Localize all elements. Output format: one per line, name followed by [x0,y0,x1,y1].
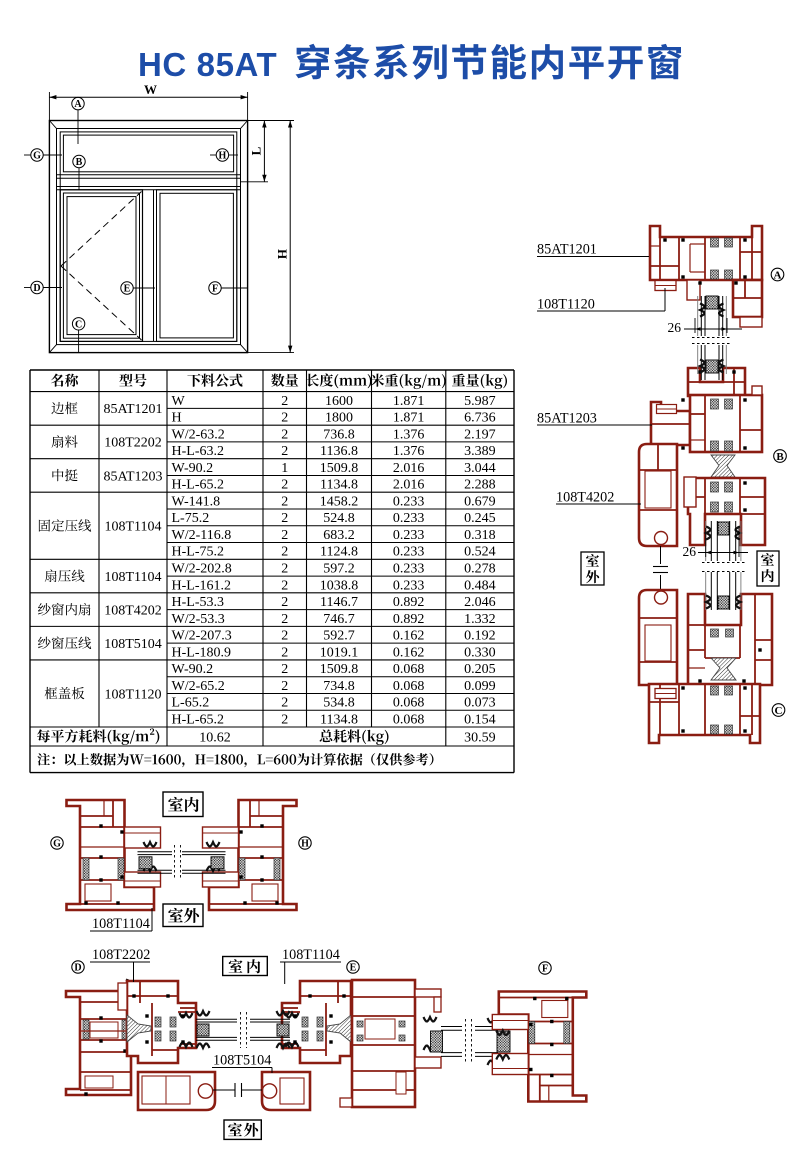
svg-text:85AT1203: 85AT1203 [537,411,597,427]
svg-text:H-L-75.2: H-L-75.2 [172,545,225,560]
svg-text:26: 26 [683,544,697,559]
svg-text:1134.8: 1134.8 [320,478,358,493]
svg-text:1.871: 1.871 [393,394,425,409]
svg-text:2: 2 [281,528,288,543]
svg-text:0.233: 0.233 [393,578,425,593]
svg-text:746.7: 746.7 [323,612,355,627]
svg-text:2: 2 [281,427,288,442]
svg-text:C: C [775,705,783,717]
svg-text:85AT1203: 85AT1203 [103,469,162,484]
svg-text:0.245: 0.245 [464,511,496,526]
svg-text:2: 2 [281,511,288,526]
svg-text:2: 2 [281,645,288,660]
svg-text:L: L [249,146,264,155]
svg-text:85AT1201: 85AT1201 [537,242,597,258]
svg-text:734.8: 734.8 [323,679,355,694]
svg-text:0.892: 0.892 [393,595,425,610]
svg-text:2.288: 2.288 [464,478,496,493]
svg-text:2.016: 2.016 [393,461,425,476]
svg-text:0.892: 0.892 [393,612,425,627]
svg-text:108T1104: 108T1104 [92,916,150,932]
svg-text:2: 2 [281,612,288,627]
svg-text:1509.8: 1509.8 [320,662,359,677]
svg-text:2: 2 [281,712,288,727]
svg-text:G: G [33,151,41,162]
svg-text:F: F [542,964,548,975]
svg-text:0.205: 0.205 [464,662,496,677]
svg-text:524.8: 524.8 [323,511,355,526]
svg-text:W/2-65.2: W/2-65.2 [172,679,225,694]
svg-text:0.154: 0.154 [464,712,496,727]
svg-text:0.318: 0.318 [464,528,496,543]
svg-text:B: B [76,157,83,168]
svg-text:H: H [219,151,227,162]
svg-text:2: 2 [281,696,288,711]
svg-text:W-141.8: W-141.8 [172,494,221,509]
svg-text:1019.1: 1019.1 [320,645,359,660]
svg-text:592.7: 592.7 [323,629,355,644]
svg-text:108T4202: 108T4202 [556,490,614,506]
svg-text:108T4202: 108T4202 [104,603,162,618]
svg-text:0.330: 0.330 [464,645,496,660]
svg-text:2: 2 [281,478,288,493]
svg-text:0.162: 0.162 [393,629,425,644]
svg-text:0.068: 0.068 [393,696,425,711]
svg-text:534.8: 534.8 [323,696,355,711]
svg-text:W/2-207.3: W/2-207.3 [172,629,232,644]
svg-text:W/2-202.8: W/2-202.8 [172,561,232,576]
svg-text:108T1104: 108T1104 [104,570,161,585]
svg-text:108T2202: 108T2202 [104,436,162,451]
svg-text:H: H [301,839,309,850]
svg-text:1038.8: 1038.8 [320,578,359,593]
svg-text:E: E [124,284,131,295]
svg-text:0.679: 0.679 [464,494,496,509]
svg-text:H: H [172,411,182,426]
svg-text:W: W [172,394,186,409]
svg-text:0.233: 0.233 [393,561,425,576]
svg-text:W: W [144,82,157,97]
svg-text:1146.7: 1146.7 [320,595,358,610]
svg-text:0.484: 0.484 [464,578,496,593]
svg-text:L-75.2: L-75.2 [172,511,210,526]
svg-text:0.068: 0.068 [393,662,425,677]
svg-text:0.073: 0.073 [464,696,496,711]
svg-text:0.162: 0.162 [393,645,425,660]
svg-text:0.233: 0.233 [393,511,425,526]
svg-text:1.871: 1.871 [393,411,425,426]
svg-text:B: B [776,451,784,463]
svg-text:1.376: 1.376 [393,444,425,459]
svg-text:108T5104: 108T5104 [104,637,162,652]
svg-text:5.987: 5.987 [464,394,496,409]
svg-text:683.2: 683.2 [323,528,355,543]
svg-text:W/2-63.2: W/2-63.2 [172,427,225,442]
svg-text:2.197: 2.197 [464,427,496,442]
svg-text:1458.2: 1458.2 [320,494,359,509]
svg-text:L-65.2: L-65.2 [172,696,210,711]
svg-text:2: 2 [281,494,288,509]
svg-text:0.068: 0.068 [393,679,425,694]
svg-text:85AT1201: 85AT1201 [103,402,162,417]
svg-text:1600: 1600 [325,394,353,409]
svg-text:736.8: 736.8 [323,427,355,442]
svg-text:0.524: 0.524 [464,545,496,560]
svg-text:2: 2 [281,545,288,560]
svg-text:E: E [350,963,357,974]
svg-text:2: 2 [281,679,288,694]
svg-text:108T1104: 108T1104 [282,947,340,963]
svg-text:0.192: 0.192 [464,629,496,644]
svg-text:1136.8: 1136.8 [320,444,358,459]
svg-text:W-90.2: W-90.2 [172,461,214,476]
svg-text:2: 2 [281,578,288,593]
svg-text:0.099: 0.099 [464,679,496,694]
svg-text:H-L-63.2: H-L-63.2 [172,444,225,459]
svg-text:1134.8: 1134.8 [320,712,358,727]
svg-text:2: 2 [281,444,288,459]
svg-text:1: 1 [281,461,288,476]
svg-text:D: D [74,963,81,974]
svg-text:H-L-161.2: H-L-161.2 [172,578,232,593]
svg-text:1800: 1800 [325,411,353,426]
svg-text:A: A [74,99,82,110]
svg-text:108T5104: 108T5104 [213,1053,271,1069]
svg-text:1509.8: 1509.8 [320,461,359,476]
svg-text:26: 26 [668,320,682,335]
svg-text:0.278: 0.278 [464,561,496,576]
svg-text:30.59: 30.59 [464,730,496,745]
svg-text:6.736: 6.736 [464,411,496,426]
svg-text:W-90.2: W-90.2 [172,662,214,677]
svg-text:0.233: 0.233 [393,494,425,509]
svg-text:2: 2 [281,411,288,426]
svg-text:10.62: 10.62 [199,730,231,745]
svg-text:0.233: 0.233 [393,545,425,560]
svg-text:0.233: 0.233 [393,528,425,543]
svg-text:H-L-65.2: H-L-65.2 [172,712,225,727]
svg-text:HC 85AT: HC 85AT [138,46,277,83]
svg-text:F: F [212,284,218,295]
svg-text:1124.8: 1124.8 [320,545,358,560]
svg-text:108T1120: 108T1120 [104,687,161,702]
svg-text:G: G [53,839,61,850]
svg-text:1.376: 1.376 [393,427,425,442]
svg-text:2: 2 [281,629,288,644]
svg-text:3.389: 3.389 [464,444,496,459]
svg-text:1.332: 1.332 [464,612,496,627]
svg-text:108T2202: 108T2202 [92,947,150,963]
svg-text:2.016: 2.016 [393,478,425,493]
svg-text:H-L-65.2: H-L-65.2 [172,478,225,493]
svg-text:H: H [275,249,290,259]
svg-text:2: 2 [281,394,288,409]
svg-text:2: 2 [281,662,288,677]
svg-text:W/2-53.3: W/2-53.3 [172,612,225,627]
svg-text:2: 2 [281,561,288,576]
svg-text:C: C [75,319,82,330]
svg-text:108T1120: 108T1120 [537,297,595,313]
svg-text:W/2-116.8: W/2-116.8 [172,528,232,543]
svg-text:H-L-53.3: H-L-53.3 [172,595,225,610]
svg-text:2: 2 [281,595,288,610]
svg-text:108T1104: 108T1104 [104,520,161,535]
svg-text:3.044: 3.044 [464,461,496,476]
svg-text:597.2: 597.2 [323,561,355,576]
svg-text:D: D [33,283,40,294]
svg-text:0.068: 0.068 [393,712,425,727]
svg-text:A: A [774,269,782,281]
svg-text:2.046: 2.046 [464,595,496,610]
svg-text:H-L-180.9: H-L-180.9 [172,645,232,660]
